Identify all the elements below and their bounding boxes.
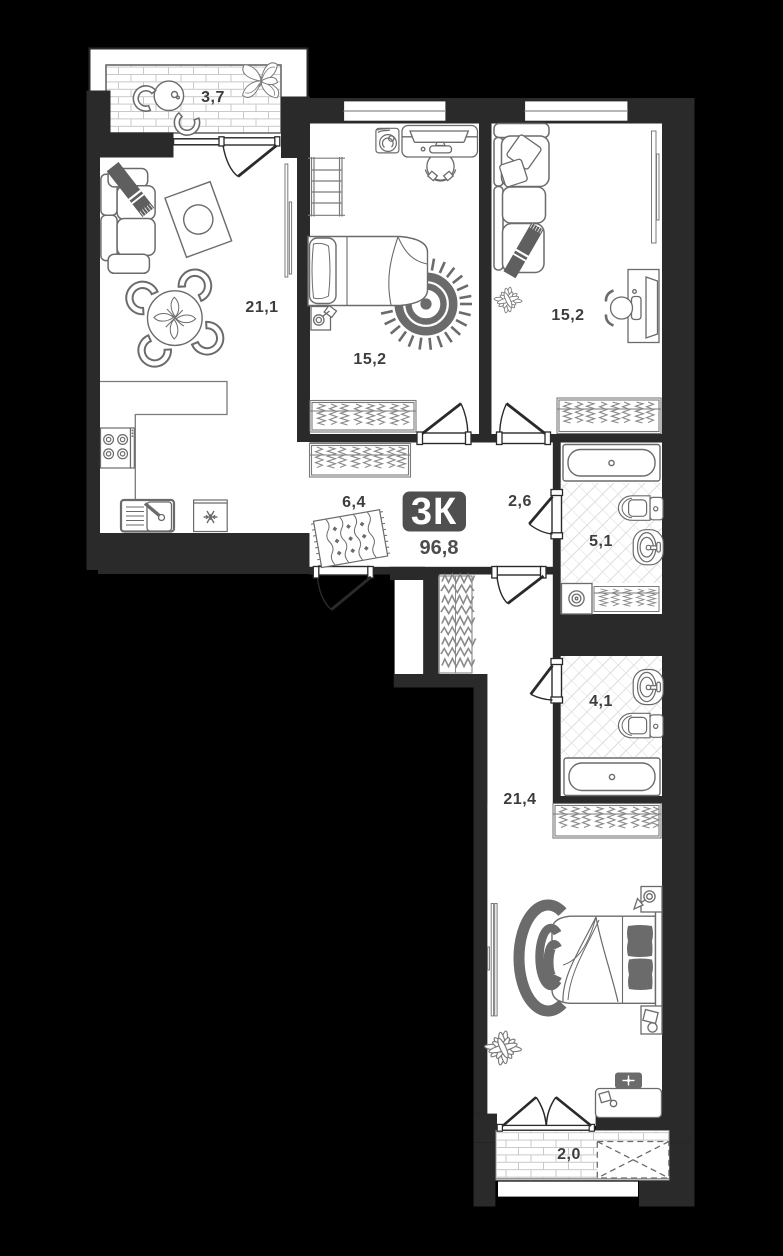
- svg-text:2,6: 2,6: [508, 493, 532, 510]
- svg-text:5,1: 5,1: [589, 533, 613, 550]
- svg-text:96,8: 96,8: [420, 537, 459, 559]
- svg-text:6,4: 6,4: [342, 494, 366, 511]
- svg-text:21,1: 21,1: [245, 299, 278, 316]
- svg-text:3,7: 3,7: [201, 89, 225, 106]
- svg-text:21,4: 21,4: [503, 791, 536, 808]
- svg-text:15,2: 15,2: [353, 351, 386, 368]
- svg-text:3К: 3К: [411, 491, 457, 533]
- svg-text:4,1: 4,1: [589, 693, 613, 710]
- svg-text:2,0: 2,0: [557, 1146, 581, 1163]
- svg-text:15,2: 15,2: [551, 307, 584, 324]
